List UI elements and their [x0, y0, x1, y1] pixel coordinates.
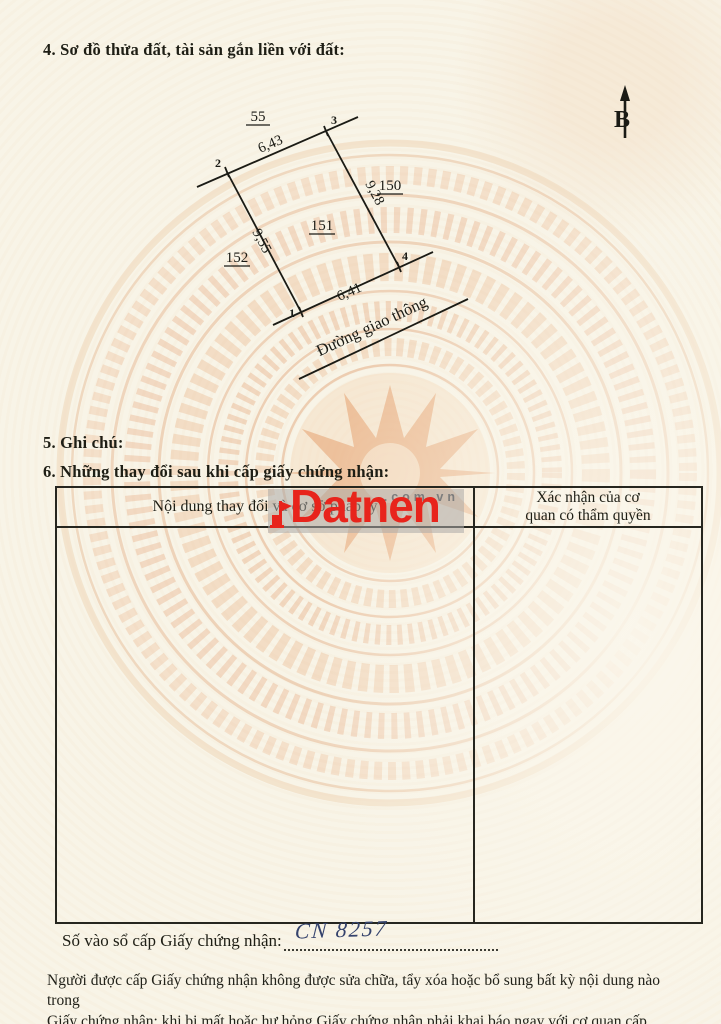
registry-entry-handwritten-value: CN 8257 — [294, 915, 389, 944]
vertex-label-4: 4 — [402, 249, 408, 263]
datnen-watermark: .com.vn Datnen — [268, 489, 464, 533]
col-header-authority-line1: Xác nhận của cơ — [536, 489, 639, 507]
changes-table-body-row — [57, 528, 701, 922]
adjacent-parcel-top: 55 — [251, 109, 266, 125]
parcel-number: 151 — [311, 218, 334, 234]
registry-entry-label: Số vào sổ cấp Giấy chứng nhận: — [62, 931, 282, 951]
watermark-brand-text: Datnen — [290, 483, 440, 529]
north-arrow-icon: B — [614, 85, 630, 138]
datnen-logo-icon — [270, 499, 292, 529]
col-header-authority-line2: quan có thẩm quyền — [525, 507, 650, 525]
edge-length-left: 9,55 — [249, 226, 275, 256]
vertex-label-3: 3 — [331, 113, 337, 127]
col-header-authority-confirmation: Xác nhận của cơ quan có thẩm quyền — [475, 488, 701, 526]
certificate-page: 4. Sơ đồ thửa đất, tài sản gắn liền với … — [0, 0, 721, 1024]
edge-length-top: 6,43 — [256, 132, 286, 157]
adjacent-parcel-left: 152 — [226, 250, 249, 266]
certificate-notice: Người được cấp Giấy chứng nhận không đượ… — [47, 971, 665, 1024]
north-label: B — [614, 107, 630, 133]
edge-length-bottom: 6,41 — [335, 280, 365, 305]
vertex-label-2: 2 — [215, 156, 221, 170]
notice-line1: Người được cấp Giấy chứng nhận không đượ… — [47, 971, 665, 1012]
change-content-cell-empty — [57, 528, 475, 922]
authority-confirmation-cell-empty — [475, 528, 701, 922]
vertex-label-1: 1 — [289, 306, 295, 320]
notice-line2: Giấy chứng nhận; khi bị mất hoặc hư hỏng… — [47, 1012, 665, 1024]
registry-entry-line: Số vào sổ cấp Giấy chứng nhận: — [62, 931, 498, 951]
changes-table: Nội dung thay đổi và cơ sở pháp lý Xác n… — [55, 486, 703, 924]
